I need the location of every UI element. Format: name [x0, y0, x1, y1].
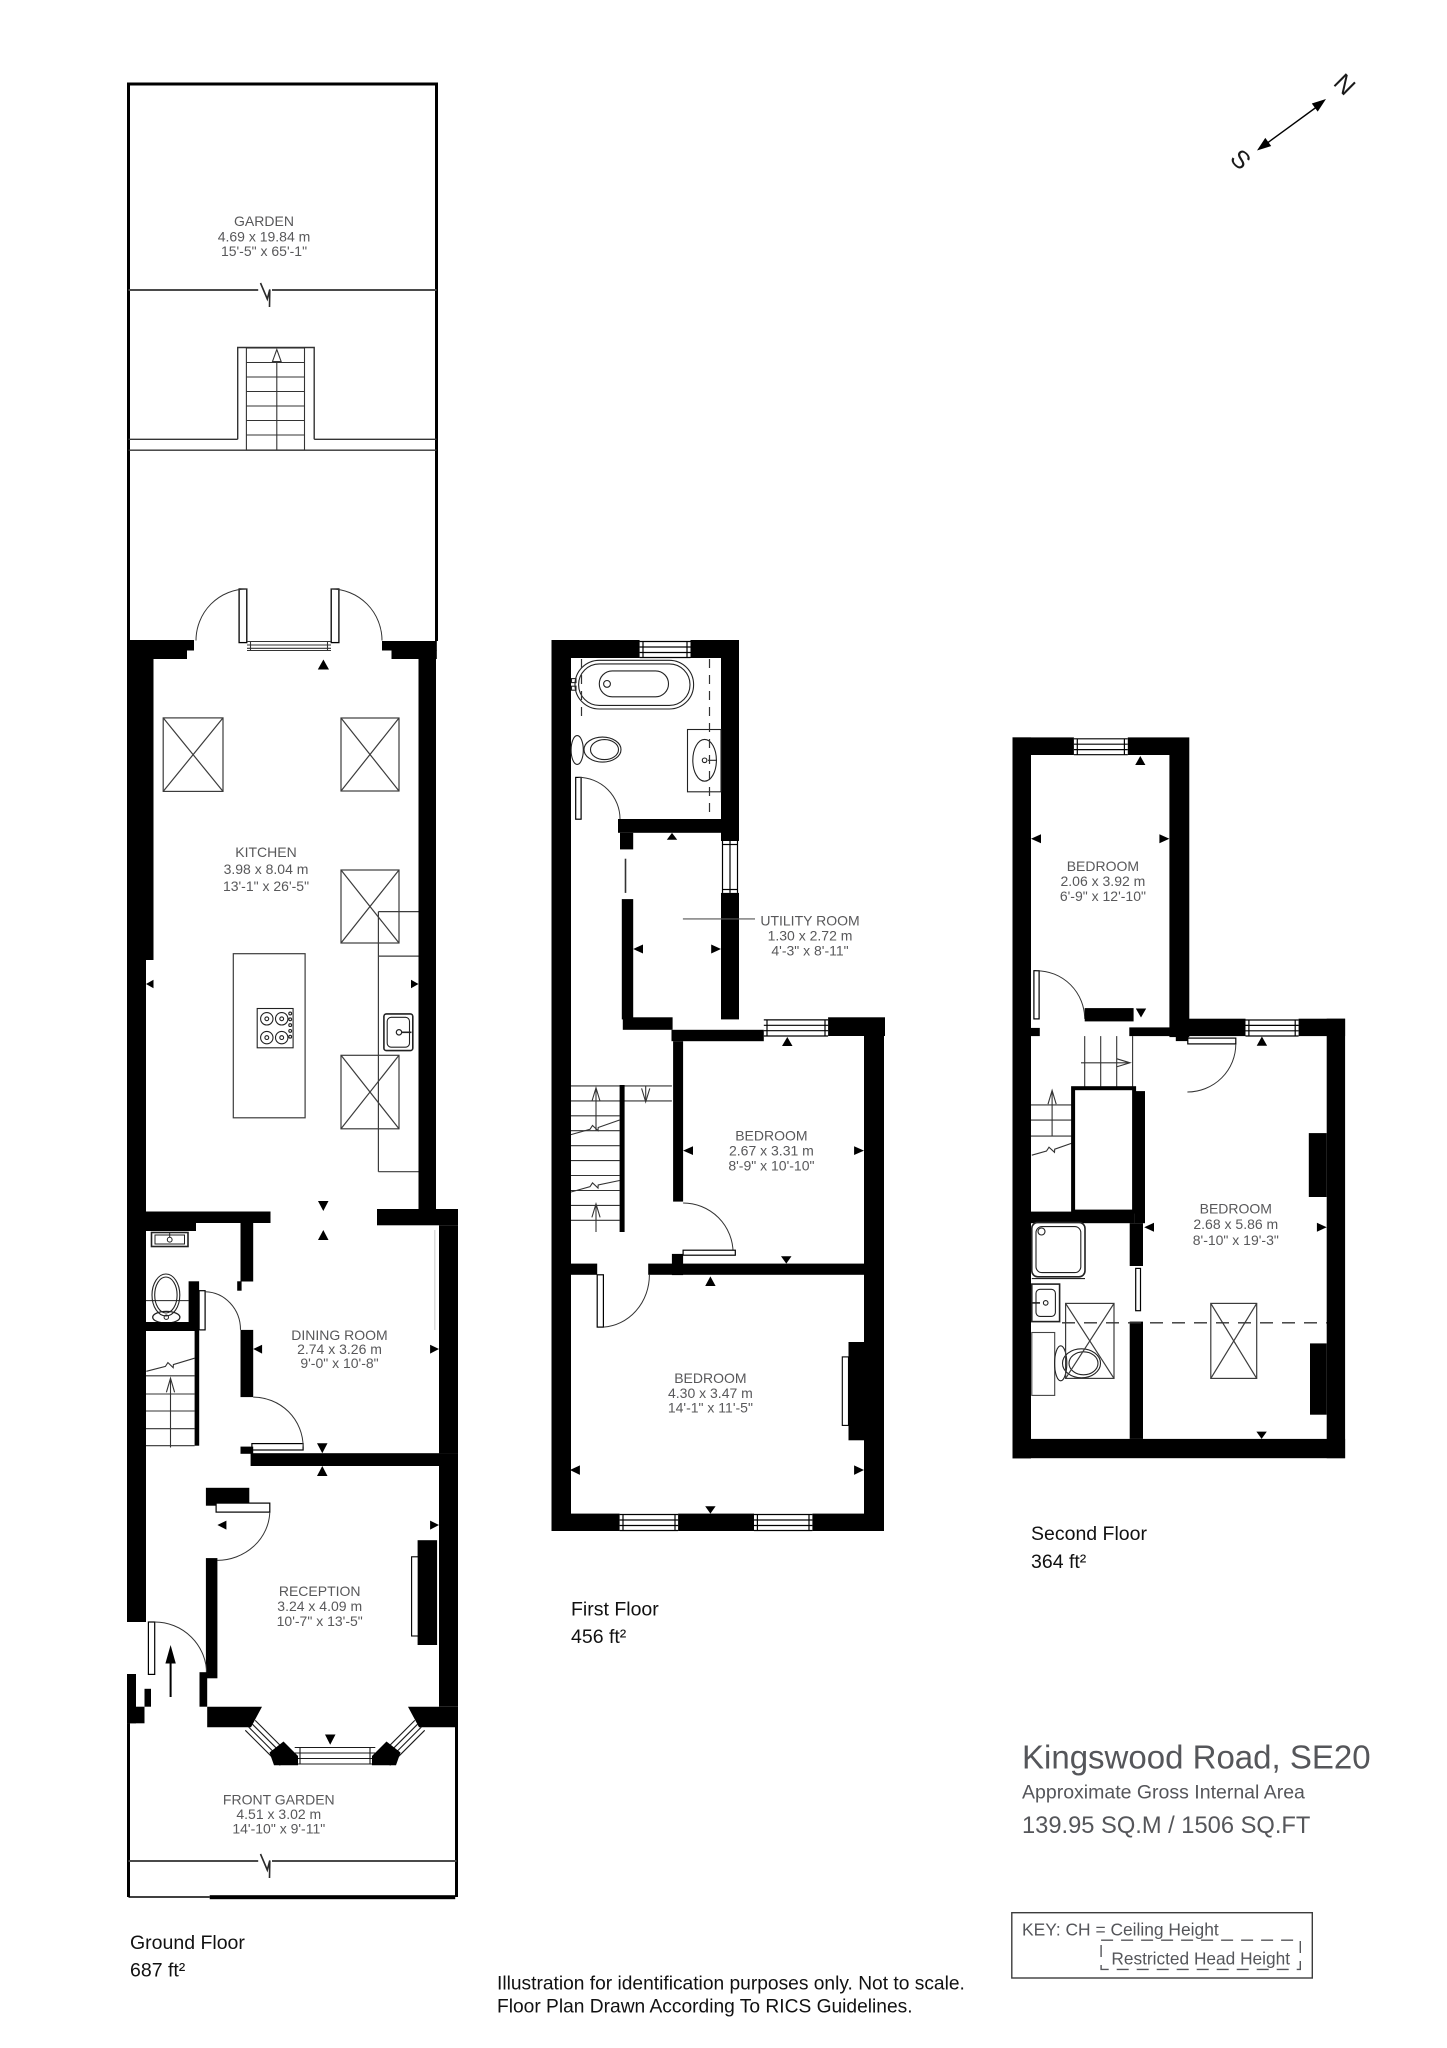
svg-text:14'-10" x 9'-11": 14'-10" x 9'-11"	[232, 1821, 325, 1837]
svg-text:6'-9" x 12'-10": 6'-9" x 12'-10"	[1060, 888, 1146, 904]
svg-text:2.67 x 3.31 m: 2.67 x 3.31 m	[729, 1143, 814, 1159]
svg-text:9'-0" x 10'-8": 9'-0" x 10'-8"	[300, 1355, 378, 1371]
svg-text:RECEPTION: RECEPTION	[279, 1583, 361, 1599]
svg-text:4'-3" x 8'-11": 4'-3" x 8'-11"	[771, 943, 848, 959]
svg-text:2.06 x 3.92 m: 2.06 x 3.92 m	[1060, 873, 1145, 889]
svg-text:1.30 x 2.72 m: 1.30 x 2.72 m	[768, 928, 853, 944]
svg-text:2.68 x 5.86 m: 2.68 x 5.86 m	[1193, 1216, 1278, 1232]
svg-text:Kingswood Road, SE20: Kingswood Road, SE20	[1022, 1739, 1371, 1776]
svg-text:3.98 x 8.04 m: 3.98 x 8.04 m	[224, 861, 309, 877]
svg-text:687 ft²: 687 ft²	[130, 1960, 186, 1982]
svg-text:First Floor: First Floor	[571, 1599, 659, 1621]
svg-text:8'-9" x 10'-10": 8'-9" x 10'-10"	[728, 1158, 814, 1174]
svg-text:364 ft²: 364 ft²	[1031, 1551, 1087, 1573]
svg-text:8'-10" x 19'-3": 8'-10" x 19'-3"	[1193, 1232, 1279, 1248]
svg-text:Restricted Head Height: Restricted Head Height	[1111, 1949, 1290, 1969]
svg-text:Floor Plan Drawn According To: Floor Plan Drawn According To RICS Guide…	[497, 1997, 913, 2018]
svg-text:BEDROOM: BEDROOM	[1200, 1201, 1272, 1217]
svg-text:KITCHEN: KITCHEN	[235, 844, 296, 860]
svg-text:Ground Floor: Ground Floor	[130, 1932, 245, 1954]
svg-text:Illustration for identificatio: Illustration for identification purposes…	[497, 1974, 965, 1995]
svg-text:BEDROOM: BEDROOM	[1067, 858, 1139, 874]
svg-text:Second Floor: Second Floor	[1031, 1523, 1147, 1545]
svg-text:UTILITY ROOM: UTILITY ROOM	[760, 913, 859, 929]
svg-text:Approximate Gross Internal Are: Approximate Gross Internal Area	[1022, 1782, 1305, 1804]
svg-text:BEDROOM: BEDROOM	[674, 1370, 746, 1386]
svg-text:GARDEN: GARDEN	[234, 213, 294, 229]
svg-text:KEY: CH = Ceiling Height: KEY: CH = Ceiling Height	[1022, 1920, 1219, 1940]
svg-text:13'-1" x 26'-5": 13'-1" x 26'-5"	[223, 878, 309, 894]
svg-text:15'-5" x 65'-1": 15'-5" x 65'-1"	[221, 243, 307, 259]
svg-text:3.24 x 4.09 m: 3.24 x 4.09 m	[277, 1598, 362, 1614]
svg-text:BEDROOM: BEDROOM	[735, 1128, 807, 1144]
svg-text:10'-7" x 13'-5": 10'-7" x 13'-5"	[277, 1613, 363, 1629]
svg-text:456 ft²: 456 ft²	[571, 1626, 627, 1648]
svg-text:139.95 SQ.M / 1506 SQ.FT: 139.95 SQ.M / 1506 SQ.FT	[1022, 1813, 1310, 1839]
svg-text:14'-1" x 11'-5": 14'-1" x 11'-5"	[668, 1400, 753, 1416]
